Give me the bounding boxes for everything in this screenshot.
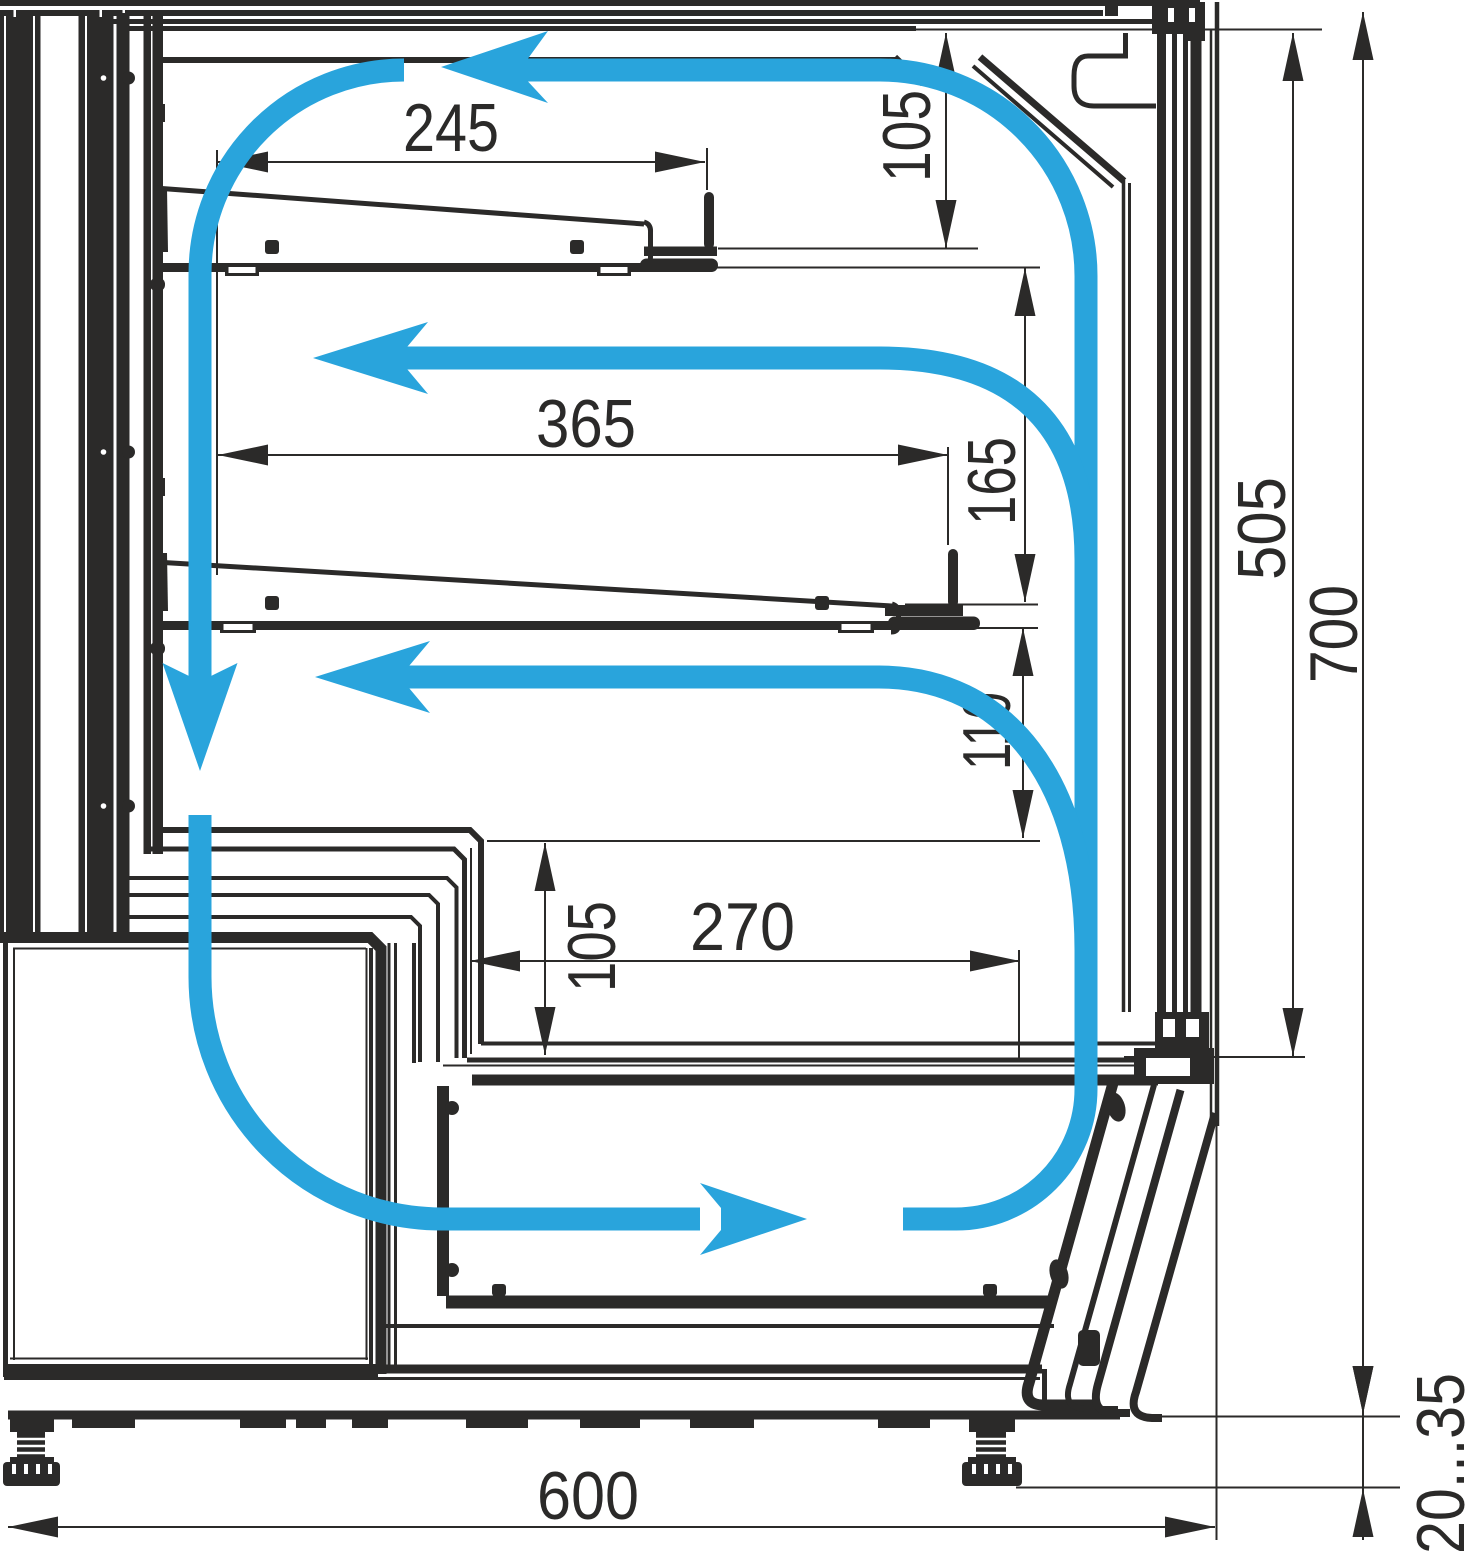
svg-text:165: 165 [954, 437, 1030, 525]
svg-text:270: 270 [690, 889, 795, 965]
svg-text:600: 600 [537, 1458, 639, 1534]
svg-text:365: 365 [536, 386, 636, 462]
svg-text:505: 505 [1224, 477, 1300, 580]
svg-text:20...35: 20...35 [1403, 1373, 1468, 1554]
svg-text:105: 105 [554, 901, 630, 992]
svg-text:105: 105 [869, 90, 945, 182]
svg-text:245: 245 [403, 90, 499, 166]
svg-text:700: 700 [1296, 585, 1372, 683]
